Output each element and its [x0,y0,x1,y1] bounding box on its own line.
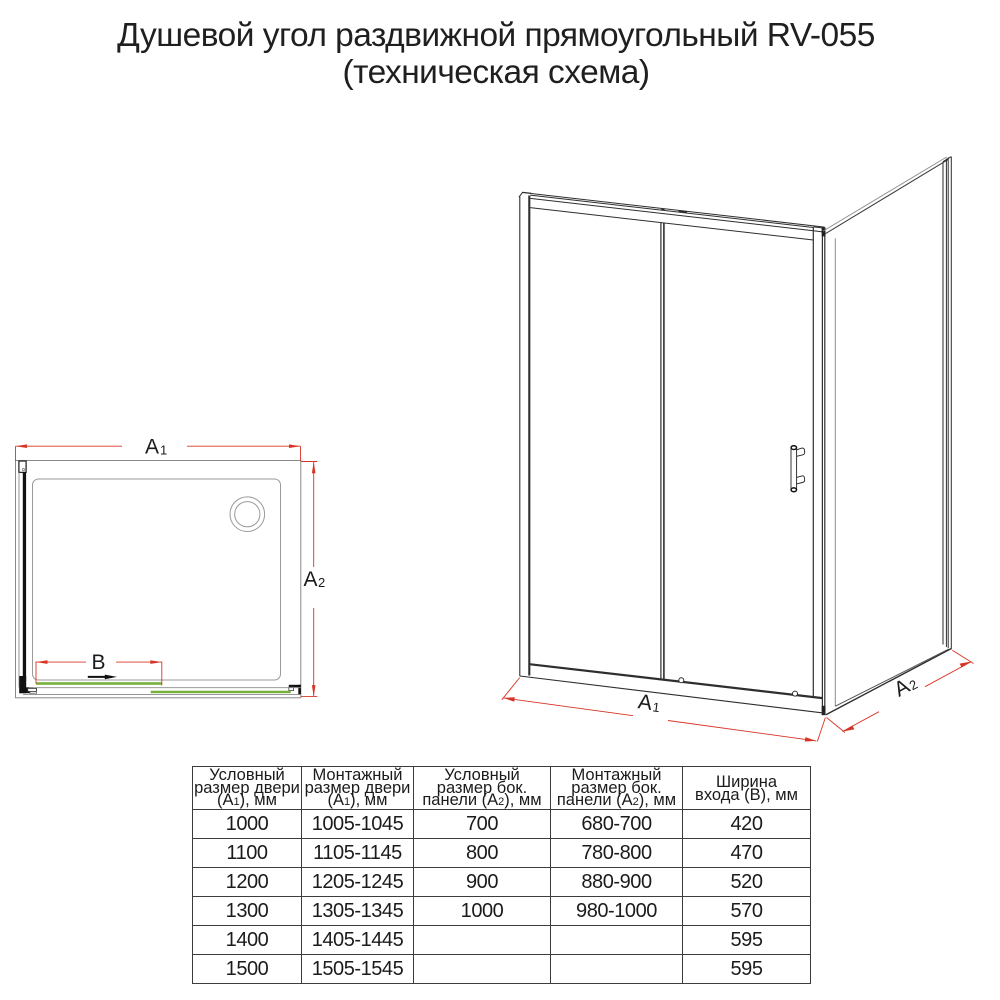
svg-text:2: 2 [318,575,325,590]
svg-text:1: 1 [160,443,167,458]
svg-text:A: A [304,568,318,591]
svg-text:B: B [92,651,106,674]
svg-text:A: A [145,436,159,459]
svg-text:1: 1 [652,699,661,715]
